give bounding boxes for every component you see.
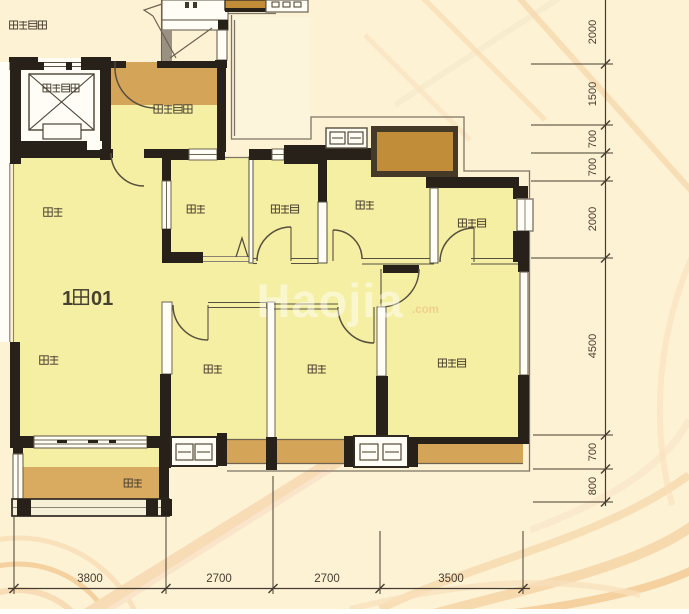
svg-text:2700: 2700 (314, 573, 340, 585)
svg-text:2700: 2700 (206, 573, 232, 585)
svg-text:700: 700 (587, 158, 599, 176)
svg-text:01: 01 (91, 288, 113, 310)
svg-text:1500: 1500 (587, 82, 599, 106)
svg-text:800: 800 (587, 477, 599, 495)
svg-text:2000: 2000 (587, 20, 599, 44)
svg-text:.com: .com (412, 304, 439, 316)
svg-text:Haojia: Haojia (256, 274, 403, 327)
svg-text:4500: 4500 (587, 334, 599, 358)
svg-text:700: 700 (587, 130, 599, 148)
svg-text:3800: 3800 (77, 573, 103, 585)
svg-text:3500: 3500 (438, 573, 464, 585)
svg-text:2000: 2000 (587, 207, 599, 231)
svg-text:1: 1 (62, 288, 73, 310)
svg-text:700: 700 (587, 443, 599, 461)
